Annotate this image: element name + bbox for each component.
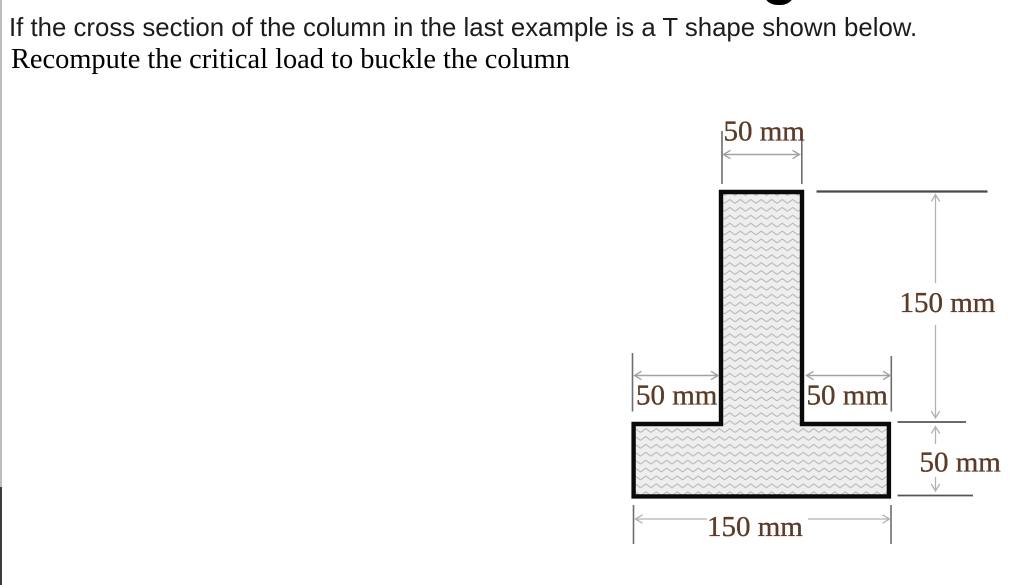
- svg-text:50 mm: 50 mm: [724, 116, 806, 148]
- svg-text:50 mm: 50 mm: [636, 380, 718, 412]
- svg-text:150 mm: 150 mm: [707, 511, 803, 543]
- svg-text:150 mm: 150 mm: [900, 287, 996, 319]
- svg-text:50 mm: 50 mm: [807, 380, 889, 412]
- svg-text:50 mm: 50 mm: [920, 447, 1002, 479]
